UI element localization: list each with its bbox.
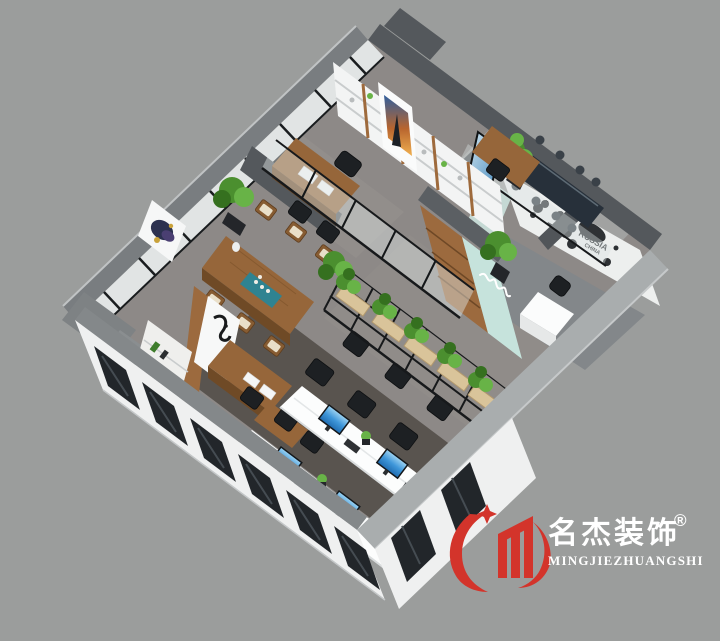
rendering-stage: RUSSIA CHINA xyxy=(0,0,720,641)
vase xyxy=(232,242,240,252)
office-rendering-canvas: RUSSIA CHINA xyxy=(0,0,720,641)
brand-name-en: MINGJIEZHUANGSHI xyxy=(548,553,704,568)
brand-name-zh: 名杰装饰 xyxy=(548,517,680,550)
registered-mark: ® xyxy=(674,511,687,530)
